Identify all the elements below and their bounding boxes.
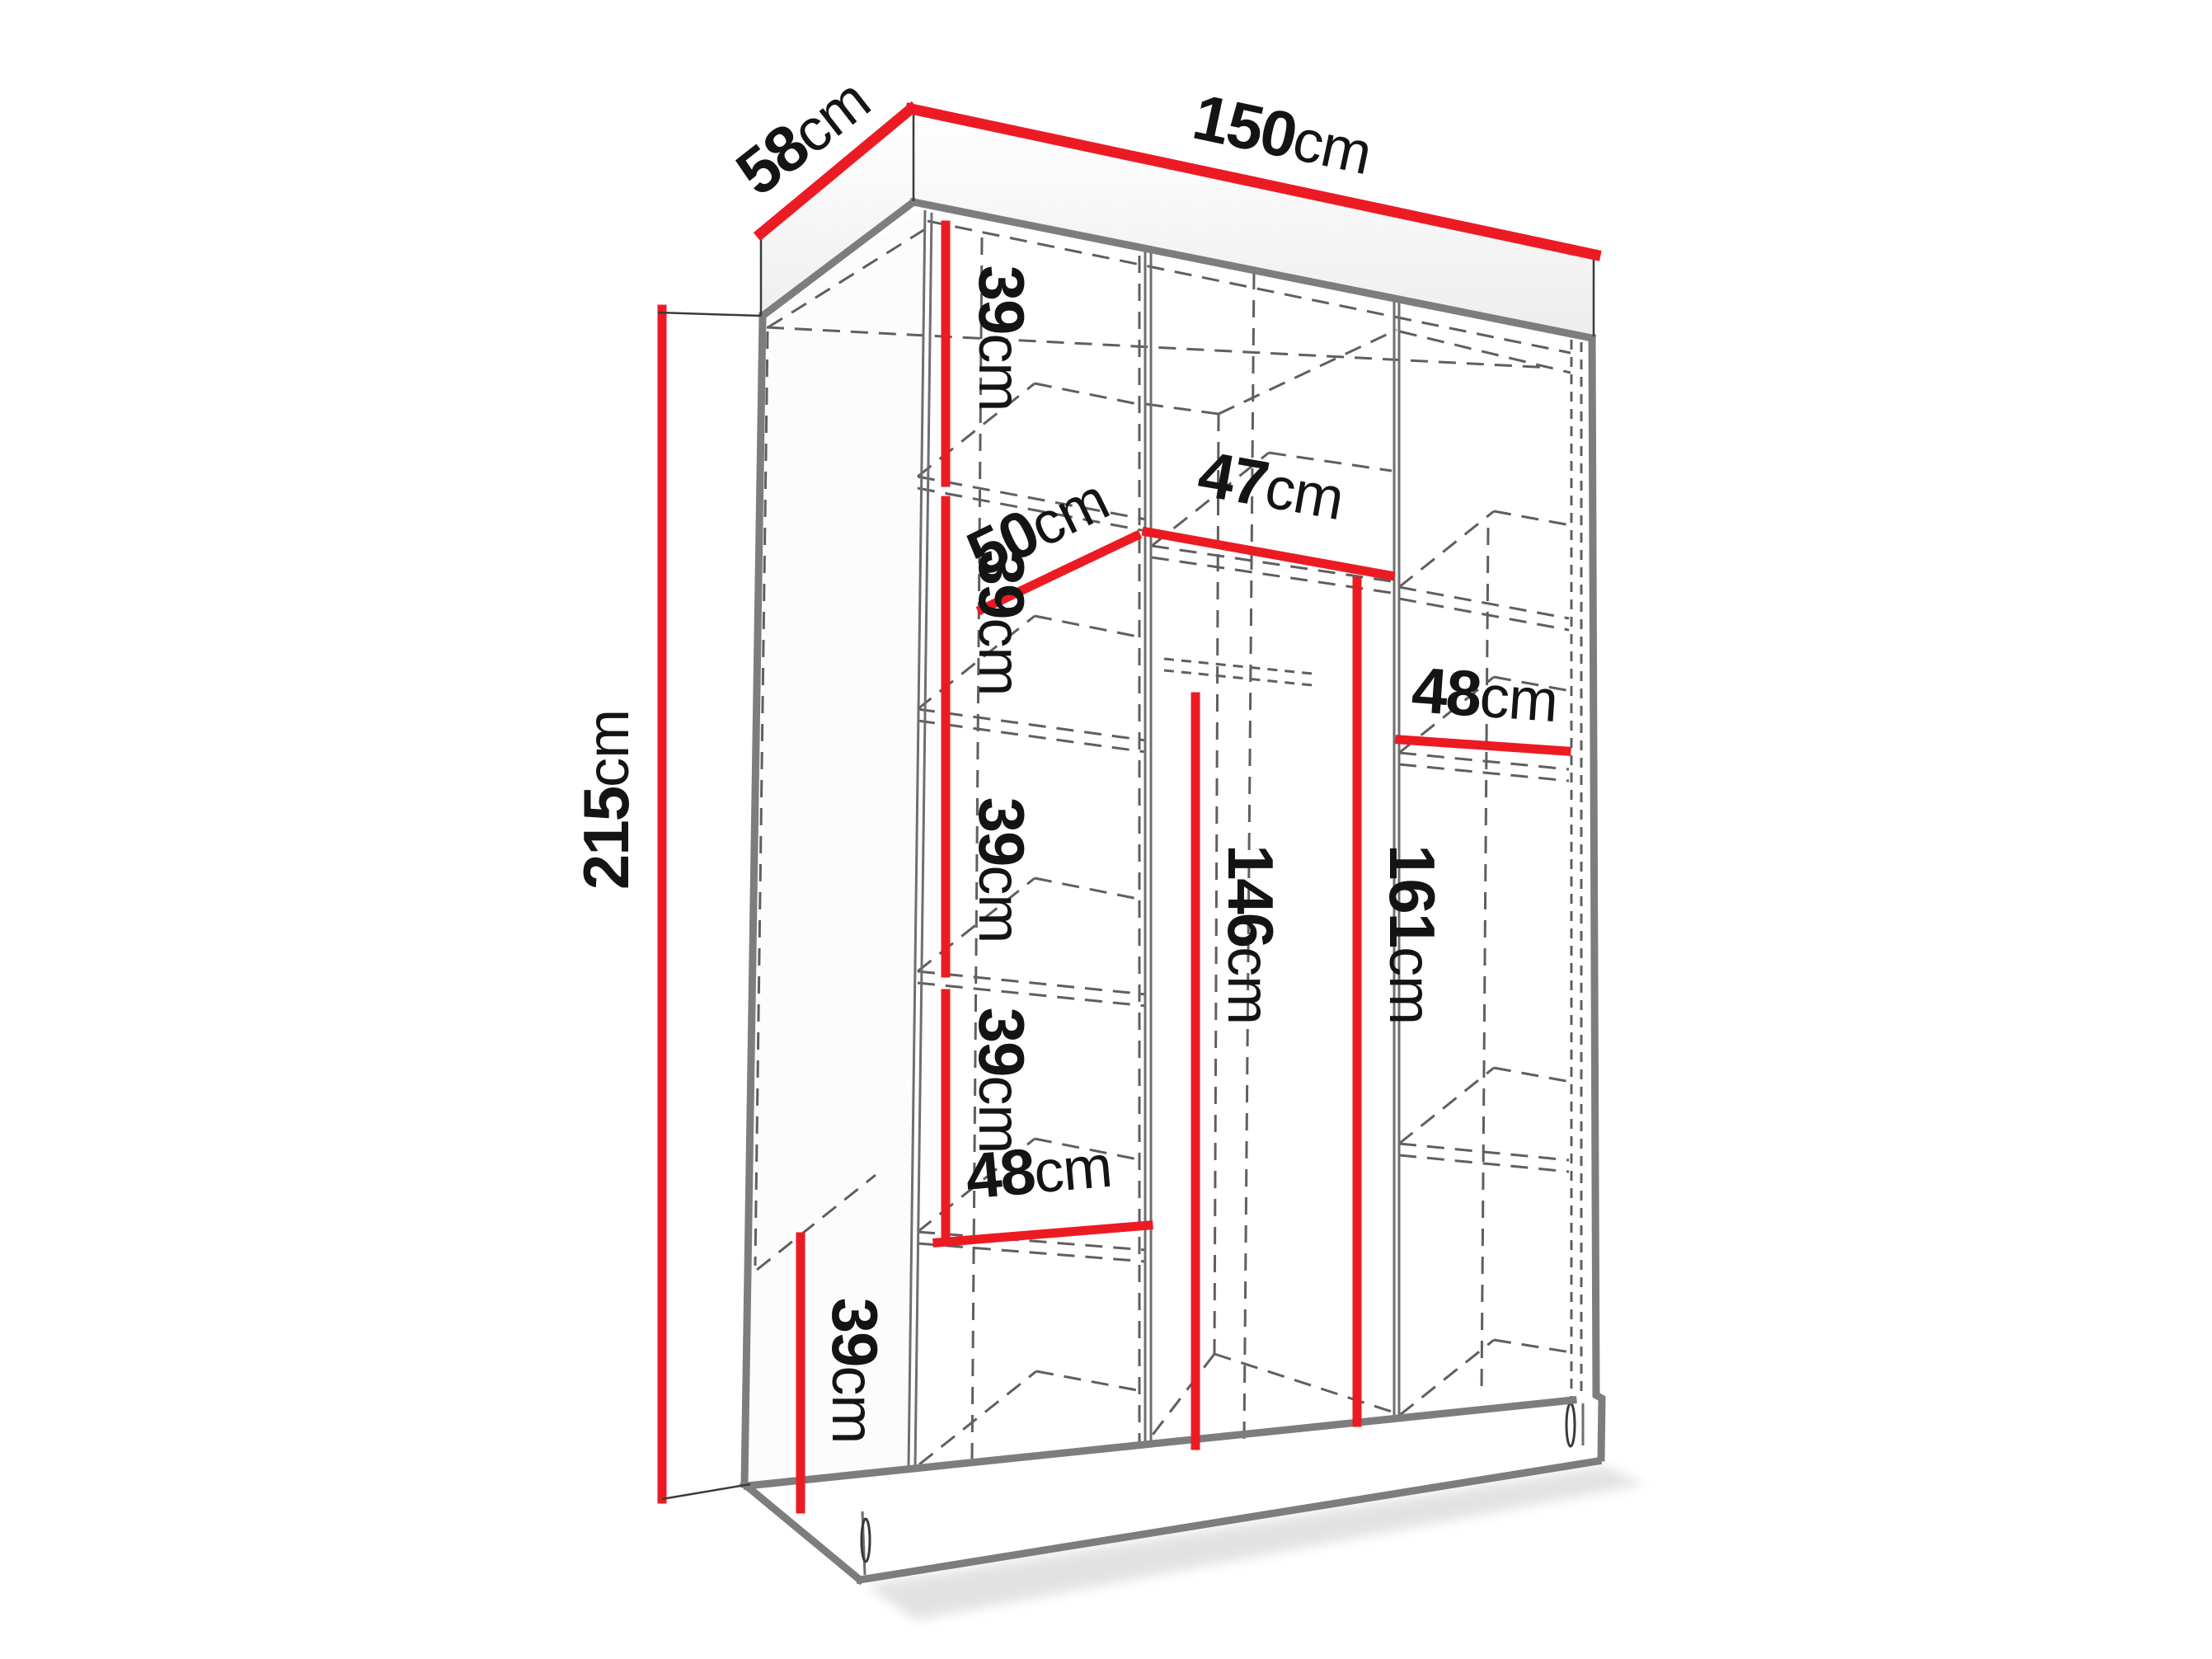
- dim-label-middle-width: 47cm: [1193, 437, 1349, 533]
- dim-line-width-48-left: [937, 1225, 1148, 1243]
- dim-label-middle-height: 146cm: [1214, 844, 1287, 1024]
- dim-label-shelf-4: 39cm: [965, 1008, 1038, 1154]
- dim-tick-top: [658, 313, 761, 316]
- dim-label-height: 215cm: [570, 710, 642, 890]
- dim-label-shelf-1: 39cm: [965, 266, 1038, 411]
- dim-label-shelf-3: 39cm: [965, 797, 1038, 943]
- dim-line-width-47: [1147, 532, 1390, 576]
- dim-label-left-width: 48cm: [963, 1128, 1115, 1213]
- wardrobe-diagram: 58cm 150cm 215cm 39cm 50cm 47cm 39cm 39c…: [0, 0, 2212, 1659]
- dim-tick-bottom: [662, 1484, 750, 1499]
- left-side-face: [744, 206, 925, 1484]
- dim-label-right-width: 48cm: [1410, 653, 1560, 736]
- dim-line-width-48-right: [1400, 740, 1566, 751]
- dim-label-right-height: 161cm: [1376, 844, 1449, 1024]
- diagram-canvas: 58cm 150cm 215cm 39cm 50cm 47cm 39cm 39c…: [0, 0, 2212, 1659]
- dim-label-shelf-bottom: 39cm: [819, 1298, 891, 1444]
- dim-label-shelf-2: 39cm: [965, 550, 1038, 696]
- right-outer-edge: [1592, 338, 1602, 1458]
